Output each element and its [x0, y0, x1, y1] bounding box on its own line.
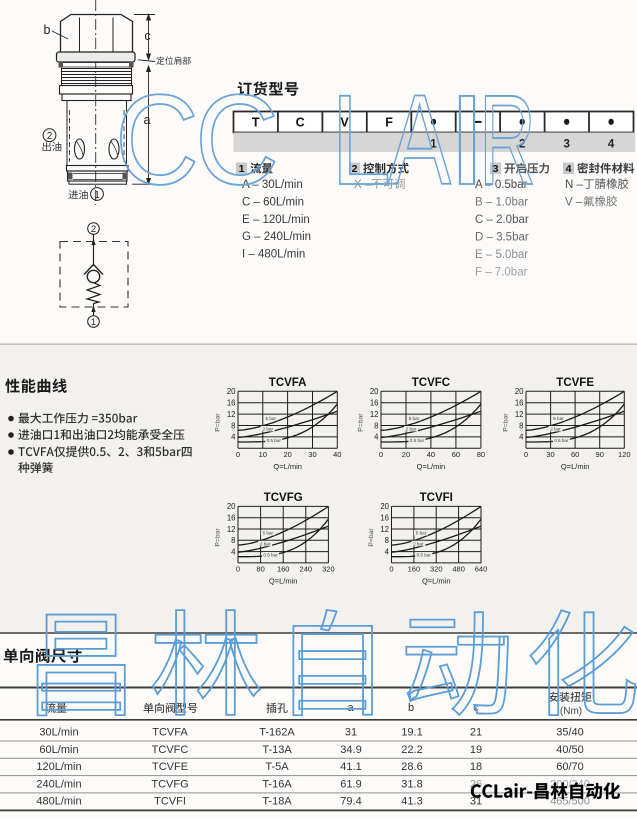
svg-text:20: 20 [283, 450, 291, 459]
svg-text:0.5 bar: 0.5 bar [554, 438, 569, 443]
svg-text:A: A [388, 69, 451, 212]
svg-text:60: 60 [452, 450, 460, 459]
svg-text:12: 12 [370, 410, 379, 419]
svg-text:Q=L/min: Q=L/min [273, 462, 302, 471]
svg-text:3: 3 [563, 139, 569, 151]
svg-text:0: 0 [524, 450, 528, 459]
svg-text:320: 320 [430, 565, 443, 574]
svg-text:TCVFE: TCVFE [556, 377, 594, 389]
svg-text:20: 20 [227, 387, 236, 396]
svg-text:Q=L/min: Q=L/min [417, 462, 446, 471]
svg-text:P=bar: P=bar [503, 413, 510, 432]
svg-text:b: b [408, 702, 414, 714]
svg-text:2 bar: 2 bar [413, 541, 424, 546]
svg-text:c: c [144, 29, 150, 43]
svg-text:C – 2.0bar: C – 2.0bar [475, 214, 529, 226]
svg-text:V –: V – [565, 197, 583, 209]
svg-text:30L/min: 30L/min [39, 727, 78, 739]
svg-text:480L/min: 480L/min [36, 796, 81, 808]
svg-text:20: 20 [402, 450, 410, 459]
svg-text:T-5A: T-5A [265, 761, 289, 773]
svg-text:5 bar: 5 bar [553, 416, 564, 421]
svg-text:16: 16 [227, 514, 236, 523]
svg-text:P=bar: P=bar [368, 528, 375, 547]
svg-text:T-16A: T-16A [262, 778, 292, 790]
svg-text:4: 4 [385, 547, 390, 556]
svg-text:2: 2 [91, 224, 96, 235]
svg-text:120L/min: 120L/min [36, 761, 81, 773]
svg-text:80: 80 [477, 450, 485, 459]
svg-text:1: 1 [94, 190, 100, 201]
svg-text:41.1: 41.1 [340, 761, 361, 773]
svg-text:8: 8 [231, 536, 235, 545]
svg-text:0: 0 [236, 565, 240, 574]
svg-text:28.6: 28.6 [401, 761, 422, 773]
svg-text:5 bar: 5 bar [263, 531, 274, 536]
svg-text:19: 19 [470, 744, 482, 756]
svg-text:0: 0 [389, 565, 393, 574]
svg-text:480: 480 [452, 565, 465, 574]
svg-text:12: 12 [227, 525, 236, 534]
svg-text:2 bar: 2 bar [406, 427, 417, 432]
svg-text:12: 12 [515, 410, 524, 419]
svg-text:D – 3.5bar: D – 3.5bar [475, 232, 529, 244]
svg-text:4: 4 [608, 139, 615, 151]
svg-text:0.5 bar: 0.5 bar [417, 553, 432, 558]
svg-text:40/50: 40/50 [556, 744, 584, 756]
svg-text:35/40: 35/40 [556, 727, 584, 739]
svg-text:40: 40 [333, 450, 341, 459]
svg-text:240: 240 [300, 565, 313, 574]
svg-text:8: 8 [519, 421, 523, 430]
svg-text:Q=L/min: Q=L/min [422, 576, 451, 585]
svg-text:10: 10 [259, 450, 267, 459]
svg-text:8: 8 [385, 536, 389, 545]
svg-text:0: 0 [236, 450, 240, 459]
svg-text:20: 20 [380, 502, 389, 511]
svg-text:L: L [331, 69, 391, 212]
svg-text:E – 5.0bar: E – 5.0bar [475, 249, 528, 261]
svg-text:640: 640 [475, 565, 488, 574]
svg-text:5 bar: 5 bar [266, 416, 277, 421]
svg-text:P=bar: P=bar [358, 413, 365, 432]
svg-text:60L/min: 60L/min [39, 744, 78, 756]
svg-text:T-13A: T-13A [262, 744, 292, 756]
svg-text:TCVFE: TCVFE [152, 761, 188, 773]
svg-text:240L/min: 240L/min [36, 778, 81, 790]
svg-text:41.3: 41.3 [401, 796, 422, 808]
svg-text:R: R [479, 69, 536, 212]
svg-text:C: C [296, 116, 305, 130]
svg-text:TCVFC: TCVFC [412, 377, 450, 389]
svg-text:34.9: 34.9 [340, 744, 361, 756]
svg-text:20: 20 [515, 387, 524, 396]
svg-text:N –: N – [565, 179, 584, 191]
svg-text:G – 240L/min: G – 240L/min [242, 231, 311, 243]
svg-text:0.5 bar: 0.5 bar [263, 553, 278, 558]
svg-text:0.5 bar: 0.5 bar [267, 438, 282, 443]
svg-text:160: 160 [277, 565, 290, 574]
svg-text:TCVFG: TCVFG [151, 778, 188, 790]
svg-text:TCVFC: TCVFC [152, 744, 189, 756]
svg-text:79.4: 79.4 [340, 796, 361, 808]
svg-text:60: 60 [571, 450, 579, 459]
svg-text:18: 18 [470, 761, 482, 773]
svg-text:2 bar: 2 bar [550, 427, 561, 432]
svg-text:P=bar: P=bar [215, 413, 222, 432]
svg-text:22.2: 22.2 [401, 744, 422, 756]
svg-text:5 bar: 5 bar [416, 531, 427, 536]
svg-text:160: 160 [408, 565, 421, 574]
svg-text:12: 12 [380, 525, 389, 534]
svg-text:F – 7.0bar: F – 7.0bar [475, 267, 528, 279]
svg-text:16: 16 [370, 399, 379, 408]
svg-text:120: 120 [618, 450, 631, 459]
svg-text:16: 16 [515, 399, 524, 408]
svg-text:90: 90 [596, 450, 604, 459]
svg-text:TCVFI: TCVFI [420, 492, 453, 504]
svg-text:4: 4 [519, 433, 524, 442]
svg-text:b: b [44, 23, 51, 37]
svg-text:5 bar: 5 bar [409, 416, 420, 421]
svg-text:31: 31 [345, 727, 357, 739]
svg-text:(Nm): (Nm) [560, 706, 582, 717]
svg-text:20: 20 [227, 502, 236, 511]
svg-text:40: 40 [427, 450, 435, 459]
svg-text:TCVFI: TCVFI [154, 796, 186, 808]
svg-text:Q=L/min: Q=L/min [561, 462, 590, 471]
svg-text:C: C [195, 69, 279, 212]
svg-text:31.8: 31.8 [401, 778, 422, 790]
svg-text:8: 8 [374, 421, 378, 430]
svg-text:20: 20 [370, 387, 379, 396]
svg-text:TCVFA: TCVFA [269, 377, 307, 389]
svg-text:30: 30 [308, 450, 316, 459]
svg-text:4: 4 [566, 163, 572, 175]
svg-text:12: 12 [227, 410, 236, 419]
svg-text:4: 4 [231, 433, 236, 442]
svg-text:80: 80 [256, 565, 264, 574]
svg-text:2 bar: 2 bar [260, 541, 271, 546]
svg-text:2 bar: 2 bar [263, 427, 274, 432]
svg-text:19.1: 19.1 [401, 727, 422, 739]
svg-text:0.5 bar: 0.5 bar [410, 438, 425, 443]
svg-text:4: 4 [374, 433, 379, 442]
svg-text:21: 21 [470, 727, 482, 739]
svg-text:TCVFG: TCVFG [264, 492, 303, 504]
svg-text:T-18A: T-18A [262, 796, 292, 808]
svg-text:4: 4 [231, 547, 236, 556]
svg-text:I – 480L/min: I – 480L/min [242, 249, 305, 261]
svg-text:2: 2 [47, 131, 53, 142]
svg-text:1: 1 [91, 317, 96, 328]
svg-text:16: 16 [380, 514, 389, 523]
svg-text:T-162A: T-162A [259, 727, 295, 739]
svg-text:E – 120L/min: E – 120L/min [242, 214, 310, 226]
svg-text:16: 16 [227, 399, 236, 408]
svg-text:0: 0 [379, 450, 383, 459]
svg-text:60/70: 60/70 [556, 761, 584, 773]
svg-text:C: C [115, 69, 199, 212]
svg-text:TCVFA: TCVFA [152, 727, 188, 739]
svg-text:320: 320 [322, 565, 335, 574]
svg-text:30: 30 [546, 450, 554, 459]
svg-text:P=bar: P=bar [215, 528, 222, 547]
svg-text:8: 8 [231, 421, 235, 430]
svg-text:61.9: 61.9 [340, 778, 361, 790]
svg-text:Q=L/min: Q=L/min [269, 576, 298, 585]
